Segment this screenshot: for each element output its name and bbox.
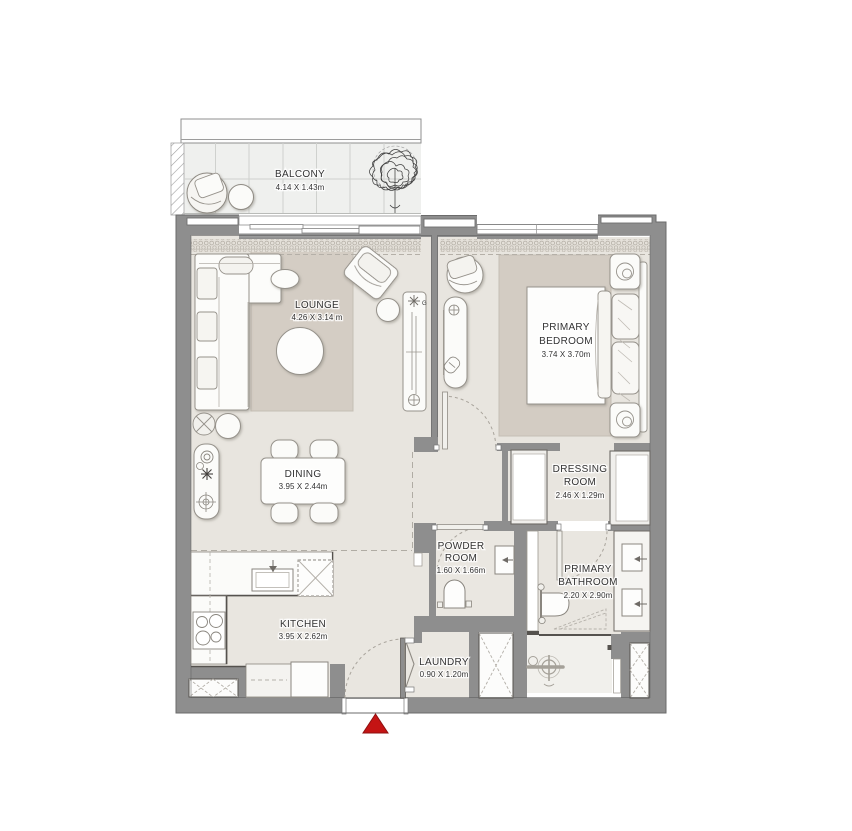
svg-text:2.20 X 2.90m: 2.20 X 2.90m	[564, 591, 613, 600]
svg-text:LAUNDRY: LAUNDRY	[419, 657, 469, 668]
svg-text:KITCHEN: KITCHEN	[280, 619, 326, 630]
svg-text:2.46 X 1.29m: 2.46 X 1.29m	[556, 491, 605, 500]
svg-text:BEDROOM: BEDROOM	[539, 336, 593, 347]
svg-text:4.14 X 1.43m: 4.14 X 1.43m	[276, 183, 325, 192]
svg-text:G: G	[422, 301, 427, 307]
svg-text:PRIMARY: PRIMARY	[542, 322, 590, 333]
svg-text:ROOM: ROOM	[445, 553, 477, 564]
svg-text:DINING: DINING	[285, 469, 322, 480]
svg-text:4.26 X 3.14 m: 4.26 X 3.14 m	[291, 313, 342, 322]
svg-text:LOUNGE: LOUNGE	[295, 300, 339, 311]
svg-text:PRIMARY: PRIMARY	[564, 564, 612, 575]
svg-text:3.95 X 2.44m: 3.95 X 2.44m	[279, 482, 328, 491]
svg-text:1.60 X 1.66m: 1.60 X 1.66m	[437, 566, 486, 575]
svg-text:3.74 X 3.70m: 3.74 X 3.70m	[542, 350, 591, 359]
svg-text:3.95 X 2.62m: 3.95 X 2.62m	[279, 632, 328, 641]
svg-text:BATHROOM: BATHROOM	[558, 577, 617, 588]
svg-text:BALCONY: BALCONY	[275, 169, 325, 180]
svg-text:POWDER: POWDER	[438, 541, 485, 552]
svg-text:DRESSING: DRESSING	[553, 464, 608, 475]
svg-text:0.90 X 1.20m: 0.90 X 1.20m	[420, 670, 469, 679]
svg-text:ROOM: ROOM	[564, 477, 596, 488]
